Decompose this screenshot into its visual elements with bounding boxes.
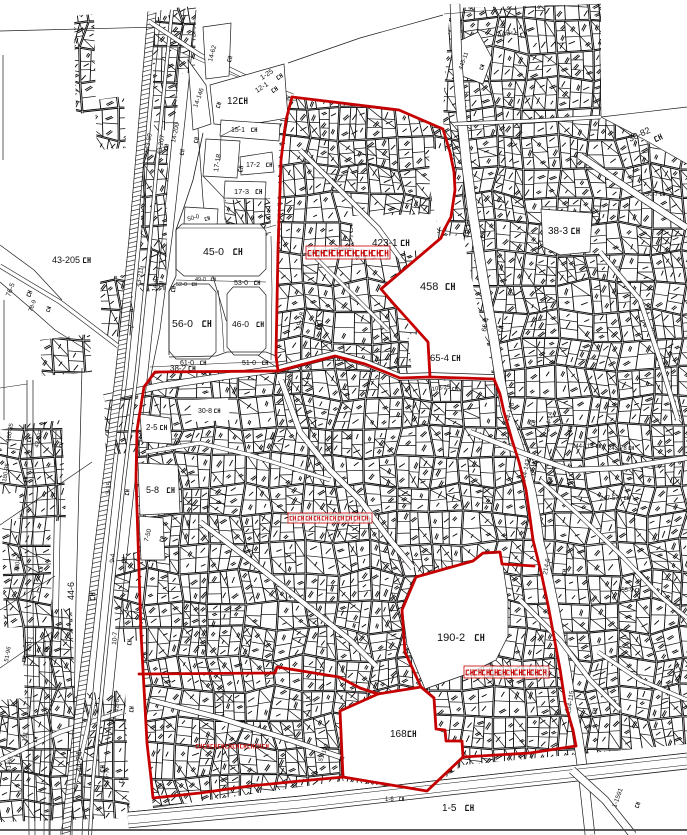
- svg-text:247-57: 247-57: [600, 496, 619, 502]
- svg-text:49-0: 49-0: [195, 277, 206, 283]
- svg-text:255-9: 255-9: [618, 588, 634, 594]
- svg-text:56-0: 56-0: [172, 318, 193, 330]
- svg-text:3-15: 3-15: [105, 481, 113, 495]
- svg-text:10-7: 10-7: [111, 631, 119, 645]
- svg-text:458: 458: [420, 281, 438, 293]
- svg-text:12: 12: [227, 96, 239, 107]
- svg-text:1-5: 1-5: [442, 803, 457, 814]
- svg-text:30-7: 30-7: [646, 192, 659, 198]
- svg-text:17-2: 17-2: [246, 162, 260, 169]
- svg-text:1-6: 1-6: [385, 797, 394, 803]
- svg-text:15-1: 15-1: [231, 127, 245, 134]
- svg-text:243-78: 243-78: [608, 446, 627, 452]
- svg-text:46-0: 46-0: [232, 319, 249, 329]
- svg-text:43-205: 43-205: [52, 255, 80, 265]
- svg-text:52-0: 52-0: [176, 282, 187, 288]
- svg-text:53-0: 53-0: [234, 280, 248, 287]
- svg-text:51-0: 51-0: [242, 360, 256, 367]
- svg-text:44-6: 44-6: [66, 582, 76, 600]
- svg-text:2-5: 2-5: [146, 423, 158, 432]
- svg-text:12-6: 12-6: [113, 698, 121, 712]
- svg-text:65-4: 65-4: [430, 353, 449, 364]
- svg-text:30-8: 30-8: [198, 408, 212, 415]
- svg-text:168: 168: [390, 729, 407, 740]
- svg-text:17-3: 17-3: [234, 187, 249, 196]
- svg-text:190-2: 190-2: [437, 632, 465, 644]
- svg-text:45-0: 45-0: [203, 246, 224, 258]
- svg-text:16-7: 16-7: [103, 769, 111, 783]
- svg-text:244-115: 244-115: [572, 444, 594, 450]
- svg-text:9-4: 9-4: [109, 553, 117, 563]
- svg-text:38-3: 38-3: [548, 226, 568, 237]
- svg-text:5-8: 5-8: [146, 485, 159, 495]
- svg-text:44-24: 44-24: [75, 751, 84, 772]
